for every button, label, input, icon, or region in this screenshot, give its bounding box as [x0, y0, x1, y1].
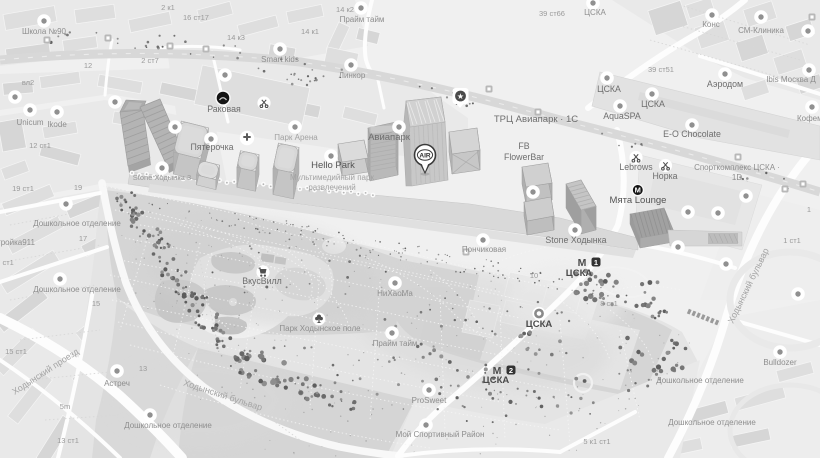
- svg-text:Астреч: Астреч: [104, 379, 130, 388]
- svg-text:Lebrows: Lebrows: [619, 162, 653, 172]
- svg-text:тройка911: тройка911: [0, 238, 36, 247]
- svg-text:2 к1: 2 к1: [161, 3, 175, 12]
- svg-text:1 ст1: 1 ст1: [783, 236, 801, 245]
- svg-text:Авиапарк: Авиапарк: [368, 132, 411, 143]
- svg-text:16 ст17: 16 ст17: [183, 13, 209, 22]
- svg-text:AquaSPA: AquaSPA: [603, 111, 641, 121]
- svg-text:Unicum: Unicum: [16, 118, 43, 127]
- svg-text:17: 17: [79, 234, 87, 243]
- svg-text:2 ст7: 2 ст7: [141, 56, 159, 65]
- svg-text:развлечений: развлечений: [308, 183, 355, 192]
- svg-text:Stone Ходынка: Stone Ходынка: [545, 235, 606, 245]
- svg-text:ProSweet: ProSweet: [412, 396, 447, 405]
- svg-text:Парк Арена: Парк Арена: [274, 133, 318, 142]
- svg-text:ЦСКА: ЦСКА: [641, 99, 665, 109]
- svg-text:ВкусВилл: ВкусВилл: [242, 276, 282, 286]
- svg-text:13: 13: [139, 364, 147, 373]
- svg-text:ЦСКА: ЦСКА: [597, 84, 621, 94]
- svg-text:FB: FB: [518, 141, 529, 151]
- svg-text:Ibis Москва Д: Ibis Москва Д: [766, 75, 816, 84]
- svg-text:Конс: Конс: [702, 20, 720, 29]
- svg-text:СМ-Клиника: СМ-Клиника: [738, 26, 784, 35]
- svg-text:★: ★: [457, 92, 464, 101]
- svg-text:Дошкольное отделение: Дошкольное отделение: [33, 285, 121, 294]
- svg-text:Дошкольное отделение: Дошкольное отделение: [656, 376, 744, 385]
- svg-text:Мультимедийный парк: Мультимедийный парк: [290, 173, 374, 182]
- svg-text:AIR: AIR: [419, 153, 431, 160]
- svg-text:Прайм тайм: Прайм тайм: [373, 339, 418, 348]
- svg-text:Аэродом: Аэродом: [707, 79, 743, 89]
- svg-text:19 ст1: 19 ст1: [12, 184, 34, 193]
- svg-text:Smart kids: Smart kids: [261, 55, 299, 64]
- svg-text:10: 10: [530, 271, 538, 280]
- svg-text:15 ст1: 15 ст1: [5, 347, 27, 356]
- svg-text:ТРЦ Авиапарк · 1С: ТРЦ Авиапарк · 1С: [494, 114, 578, 125]
- svg-text:14 к3: 14 к3: [227, 33, 245, 42]
- svg-text:вл2: вл2: [22, 78, 34, 87]
- svg-text:5m: 5m: [60, 402, 70, 411]
- svg-text:39 ст66: 39 ст66: [539, 9, 565, 18]
- svg-text:Мой Спортивный Район: Мой Спортивный Район: [396, 430, 485, 439]
- svg-text:1D: 1D: [732, 173, 742, 182]
- svg-text:FlowerBar: FlowerBar: [504, 152, 544, 162]
- svg-text:Мята Lounge: Мята Lounge: [610, 195, 667, 206]
- svg-text:Bulldozer: Bulldozer: [763, 358, 797, 367]
- svg-text:8 ст1: 8 ст1: [600, 299, 618, 308]
- svg-text:Пончиковая: Пончиковая: [462, 245, 506, 254]
- svg-text:1: 1: [807, 205, 811, 214]
- svg-text:НиХаоМа: НиХаоМа: [377, 289, 413, 298]
- svg-text:Ikode: Ikode: [47, 120, 67, 129]
- svg-text:E-O Chocolate: E-O Chocolate: [663, 129, 721, 139]
- svg-text:2: 2: [509, 366, 513, 375]
- svg-text:Норка: Норка: [652, 171, 677, 181]
- svg-text:39 ст51: 39 ст51: [648, 65, 674, 74]
- svg-text:19: 19: [74, 183, 82, 192]
- svg-text:Пятёрочка: Пятёрочка: [190, 142, 233, 152]
- svg-text:Дошкольное отделение: Дошкольное отделение: [668, 418, 756, 427]
- svg-text:Парк Ходынское поле: Парк Ходынское поле: [279, 324, 361, 333]
- svg-text:ЦСКА: ЦСКА: [526, 319, 553, 330]
- svg-text:Кофема: Кофема: [797, 114, 820, 123]
- svg-text:Прайм тайм: Прайм тайм: [340, 15, 385, 24]
- svg-text:Дошкольное отделение: Дошкольное отделение: [33, 219, 121, 228]
- svg-text:14 к2: 14 к2: [336, 5, 354, 14]
- svg-text:14 к1: 14 к1: [301, 27, 319, 36]
- svg-text:ЦСКА: ЦСКА: [566, 268, 593, 279]
- svg-text:Дошкольное отделение: Дошкольное отделение: [124, 421, 212, 430]
- svg-text:Раковая: Раковая: [207, 104, 241, 114]
- svg-text:Stone Ходынка 3: Stone Ходынка 3: [133, 173, 191, 182]
- svg-text:13 ст1: 13 ст1: [57, 436, 79, 445]
- svg-text:5 к1 ст1: 5 к1 ст1: [583, 437, 610, 446]
- svg-text:ЦСКА: ЦСКА: [584, 8, 606, 17]
- svg-text:Школа №90: Школа №90: [22, 27, 67, 36]
- svg-text:Hello Park: Hello Park: [311, 160, 355, 171]
- svg-text:Линкор: Линкор: [339, 71, 366, 80]
- svg-text:7 ст1: 7 ст1: [0, 258, 14, 267]
- svg-text:ЦСКА: ЦСКА: [483, 375, 510, 386]
- svg-text:12: 12: [84, 61, 92, 70]
- svg-text:1: 1: [594, 258, 598, 267]
- svg-text:M: M: [635, 186, 641, 195]
- svg-text:15: 15: [92, 299, 100, 308]
- svg-text:Спорткомплекс ЦСКА ·: Спорткомплекс ЦСКА ·: [694, 163, 780, 172]
- svg-text:12 ст1: 12 ст1: [29, 141, 51, 150]
